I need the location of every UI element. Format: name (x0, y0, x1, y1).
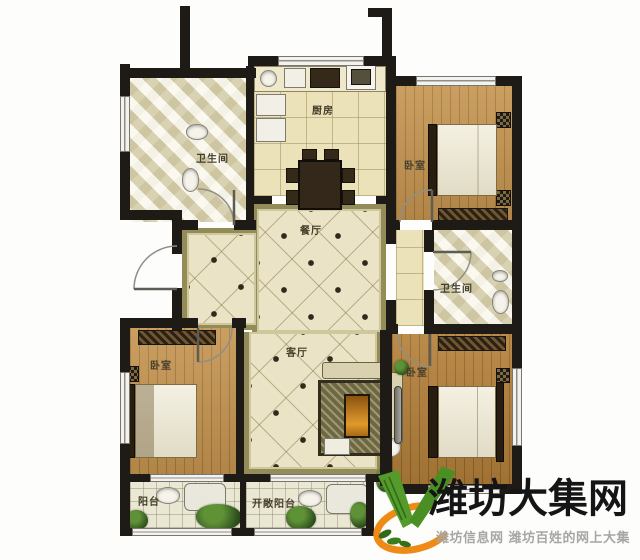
floorplan-page: { "plan": { "type": "apartment-floor-pla… (0, 0, 640, 560)
label-bathroom-top: 卫生间 (196, 150, 229, 165)
label-bathroom-right: 卫生间 (440, 280, 473, 295)
label-bedroom-bottom-right: 卧室 (406, 364, 428, 379)
label-kitchen: 厨房 (312, 102, 334, 117)
label-dining: 餐厅 (300, 222, 322, 237)
watermark-title: 潍坊大集网 (428, 477, 628, 521)
label-living: 客厅 (286, 344, 308, 359)
watermark-subtitle: 潍坊信息网 潍坊百姓的网上大集 (436, 527, 630, 546)
label-bedroom-bottom-left: 卧室 (150, 357, 172, 372)
label-bedroom-top-right: 卧室 (404, 157, 426, 172)
label-balcony: 阳台 (138, 493, 160, 508)
label-open-balcony: 开敞阳台 (252, 495, 296, 510)
